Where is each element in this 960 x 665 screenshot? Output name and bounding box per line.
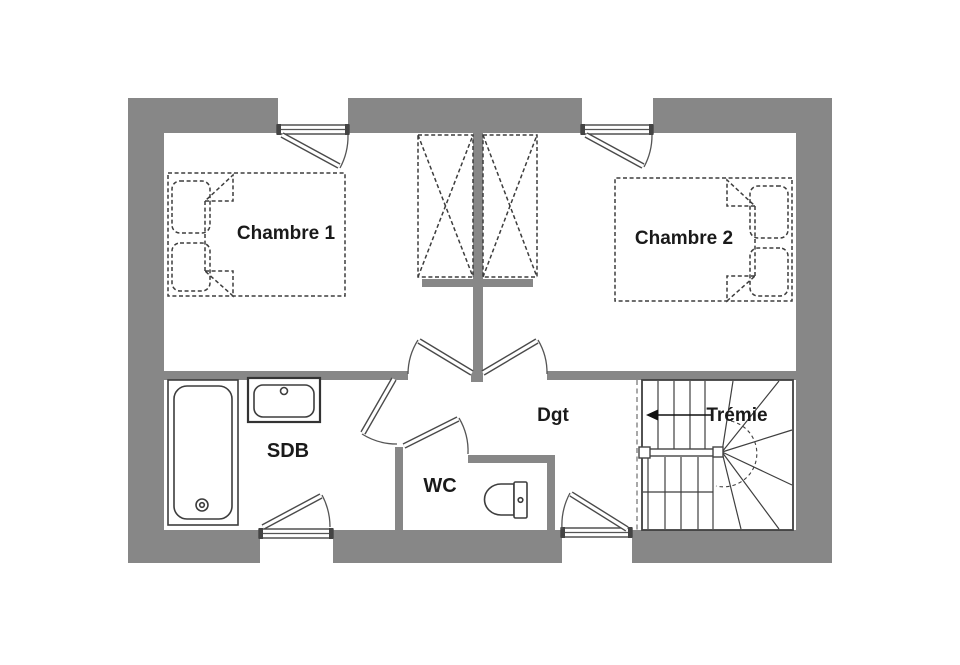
wall-wardrobe-stub-right [483, 279, 533, 287]
casement-dgt [562, 493, 627, 529]
wardrobe-right [483, 135, 537, 277]
toilet [485, 482, 527, 518]
room-label-dgt: Dgt [537, 405, 569, 426]
casement-chambre1 [282, 135, 348, 168]
wall-wardrobe-stub-left [422, 279, 473, 287]
wall-hall-right [547, 371, 796, 380]
sink-faucet [281, 388, 288, 395]
door-chambre1 [408, 340, 472, 374]
toilet-bowl [485, 484, 514, 515]
floor-plan-svg: Chambre 1 Chambre 2 SDB WC Dgt Trémie [0, 0, 960, 665]
wall-wc-left [395, 447, 403, 530]
room-label-chambre2: Chambre 2 [635, 228, 733, 249]
door-wc [404, 418, 468, 454]
window-chambre2 [581, 124, 653, 135]
wall-left [128, 98, 164, 563]
bathtub [168, 380, 238, 525]
wall-wc-right [547, 455, 555, 530]
room-label-wc: WC [423, 475, 456, 497]
sink [248, 378, 320, 422]
wall-bottom [128, 530, 832, 563]
wardrobe-left [418, 135, 473, 277]
stair-rail [649, 449, 715, 456]
window-chambre1 [277, 124, 349, 135]
staircase [637, 380, 793, 530]
wall-wc-top [468, 455, 555, 463]
stair-post-left [639, 447, 650, 458]
casement-chambre2 [586, 135, 652, 167]
door-chambre2 [483, 340, 547, 374]
wall-door-stub [471, 371, 483, 382]
room-label-chambre1: Chambre 1 [237, 223, 336, 244]
doors [263, 135, 652, 529]
stair-post-right [713, 447, 723, 457]
window-sdb [259, 528, 333, 539]
wall-bedroom-divider [473, 133, 483, 381]
room-label-tremie: Trémie [706, 405, 767, 426]
wall-right [796, 98, 832, 563]
casement-sdb [263, 495, 330, 527]
door-sdb [362, 379, 397, 444]
wall-top [128, 98, 832, 133]
floor-plan: Chambre 1 Chambre 2 SDB WC Dgt Trémie [0, 0, 960, 665]
room-label-sdb: SDB [267, 440, 309, 462]
